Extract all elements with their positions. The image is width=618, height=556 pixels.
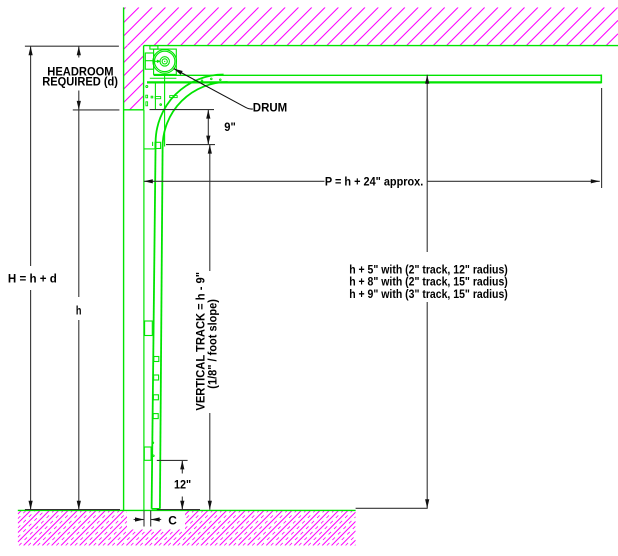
svg-text:12": 12" [174, 477, 191, 491]
svg-text:H = h + d: H = h + d [8, 272, 57, 286]
svg-text:REQUIRED (d): REQUIRED (d) [42, 75, 118, 89]
svg-text:P = h + 24" approx.: P = h + 24" approx. [325, 174, 423, 188]
svg-text:(1/8" / foot slope): (1/8" / foot slope) [205, 299, 219, 389]
svg-text:h + 9" with (3" track, 15" rad: h + 9" with (3" track, 15" radius) [349, 287, 508, 301]
svg-text:DRUM: DRUM [253, 100, 287, 114]
svg-text:9": 9" [224, 120, 236, 134]
svg-text:h: h [76, 304, 82, 318]
svg-text:C: C [168, 514, 177, 528]
